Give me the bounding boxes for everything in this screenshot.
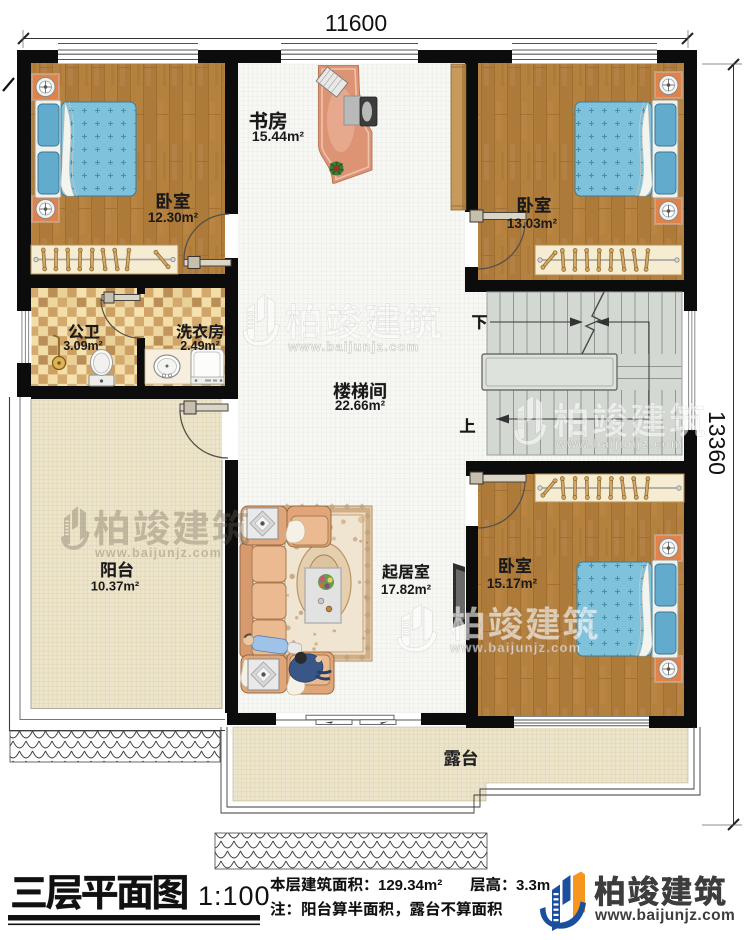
- svg-text:www.baijunjz.com: www.baijunjz.com: [555, 437, 683, 451]
- svg-text:1:100: 1:100: [198, 881, 271, 911]
- svg-text:www.baijunjz.com: www.baijunjz.com: [449, 640, 581, 655]
- svg-text:10.37m²: 10.37m²: [91, 579, 140, 594]
- svg-text:3.3m: 3.3m: [516, 877, 550, 894]
- svg-text:12.30m²: 12.30m²: [148, 210, 199, 225]
- svg-text:17.82m²: 17.82m²: [381, 582, 432, 597]
- svg-text:22.66m²: 22.66m²: [335, 398, 386, 413]
- svg-text:13.03m²: 13.03m²: [507, 216, 558, 231]
- svg-text:129.34m²: 129.34m²: [378, 877, 442, 894]
- svg-text:15.17m²: 15.17m²: [487, 576, 538, 591]
- svg-text:2.49m²: 2.49m²: [180, 339, 220, 353]
- svg-text:www.baijunjz.com: www.baijunjz.com: [594, 907, 735, 924]
- svg-text:11600: 11600: [325, 10, 387, 36]
- svg-text:13360: 13360: [704, 411, 730, 475]
- svg-text:www.baijunjz.com: www.baijunjz.com: [287, 339, 419, 354]
- svg-text:15.44m²: 15.44m²: [252, 128, 304, 144]
- svg-text:www.baijunjz.com: www.baijunjz.com: [94, 546, 222, 560]
- svg-text:3.09m²: 3.09m²: [63, 339, 103, 353]
